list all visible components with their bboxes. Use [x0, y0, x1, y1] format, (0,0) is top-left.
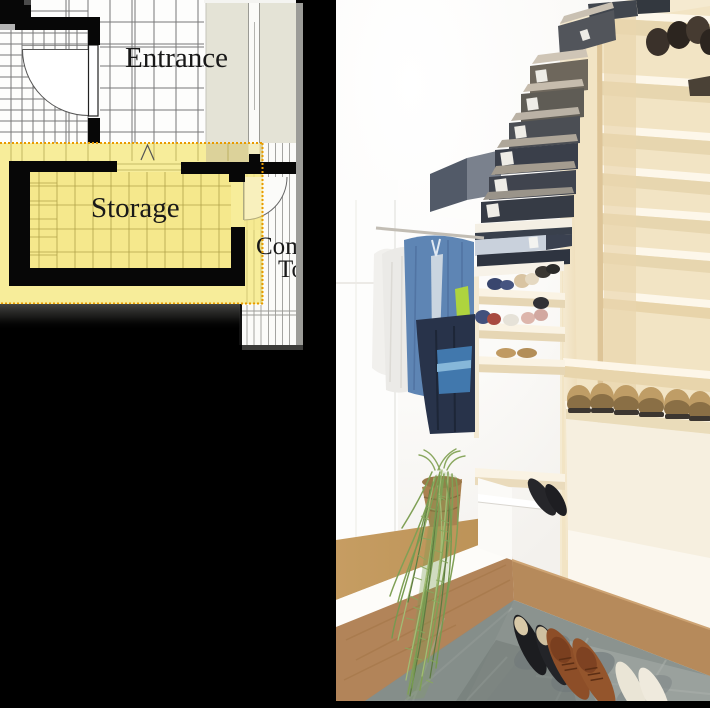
- svg-text:Storage: Storage: [91, 192, 180, 224]
- svg-text:Entrance: Entrance: [125, 42, 228, 74]
